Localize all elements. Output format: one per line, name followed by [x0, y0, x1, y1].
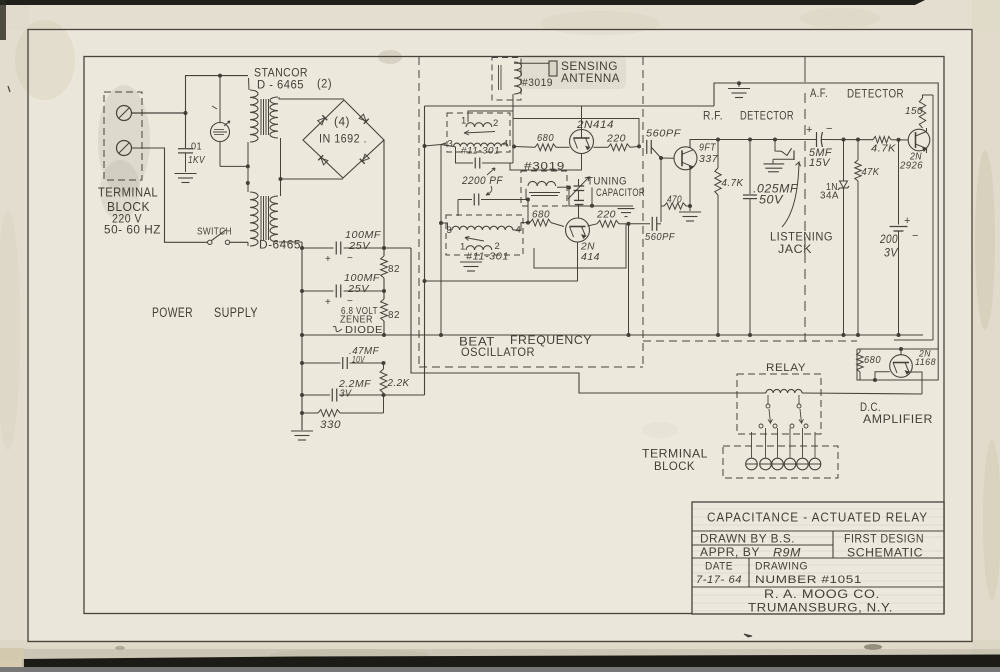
svg-text:D.C.: D.C. — [860, 402, 881, 414]
svg-text:.01: .01 — [188, 141, 202, 153]
svg-text:TRUMANSBURG, N.Y.: TRUMANSBURG, N.Y. — [748, 603, 893, 615]
svg-text:SWITCH: SWITCH — [197, 226, 232, 238]
svg-text:TUNING: TUNING — [587, 176, 627, 188]
svg-text:+: + — [325, 297, 331, 308]
svg-text:D-6465: D-6465 — [259, 240, 301, 252]
svg-text:R. A. MOOG CO.: R. A. MOOG CO. — [764, 589, 880, 601]
svg-text:3V: 3V — [340, 389, 353, 400]
svg-text:3: 3 — [448, 139, 454, 150]
svg-text:NUMBER #1051: NUMBER #1051 — [755, 574, 862, 586]
svg-text:4: 4 — [503, 139, 509, 150]
svg-text:50V: 50V — [759, 195, 784, 207]
svg-text:200: 200 — [879, 234, 898, 246]
svg-text:DIODE: DIODE — [345, 325, 383, 336]
svg-text:337: 337 — [699, 153, 719, 165]
svg-text:BLOCK: BLOCK — [654, 459, 695, 473]
svg-text:AMPLIFIER: AMPLIFIER — [863, 414, 933, 426]
svg-text:TERMINAL: TERMINAL — [98, 185, 158, 200]
svg-text:82: 82 — [388, 309, 400, 321]
svg-text:POWER: POWER — [152, 305, 193, 320]
svg-text:+: + — [806, 124, 813, 136]
svg-text:FREQUENCY: FREQUENCY — [510, 335, 592, 347]
svg-text:OSCILLATOR: OSCILLATOR — [461, 347, 535, 359]
svg-text:150: 150 — [905, 105, 923, 117]
svg-text:DETECTOR: DETECTOR — [847, 89, 904, 101]
svg-text:−: − — [912, 230, 919, 242]
svg-text:560PF: 560PF — [646, 128, 681, 140]
svg-text:1KV: 1KV — [188, 154, 205, 166]
svg-text:#3019: #3019 — [522, 77, 553, 89]
svg-text:680: 680 — [864, 354, 881, 366]
svg-text:#11-301: #11-301 — [466, 252, 509, 263]
svg-text:680: 680 — [537, 132, 554, 144]
svg-text:2: 2 — [493, 118, 499, 129]
svg-text:(4): (4) — [334, 117, 350, 129]
svg-text:9FT: 9FT — [699, 143, 716, 154]
svg-text:330: 330 — [320, 419, 341, 431]
svg-text:25V: 25V — [347, 283, 370, 295]
svg-text:680: 680 — [532, 209, 550, 221]
svg-text:47K: 47K — [862, 166, 880, 178]
svg-text:220: 220 — [606, 133, 626, 145]
svg-text:3V: 3V — [884, 248, 899, 260]
svg-text:R9M: R9M — [773, 546, 801, 560]
svg-text:2: 2 — [495, 241, 501, 252]
svg-text:25V: 25V — [348, 240, 371, 252]
svg-text:#11-301: #11-301 — [461, 146, 500, 157]
svg-text:1: 1 — [460, 242, 466, 253]
svg-text:−: − — [826, 123, 833, 135]
svg-text:SCHEMATIC: SCHEMATIC — [847, 548, 923, 560]
svg-text:#3019: #3019 — [524, 161, 565, 173]
svg-text:34A: 34A — [820, 191, 839, 202]
svg-text:CAPACITANCE - ACTUATED RELAY: CAPACITANCE - ACTUATED RELAY — [707, 511, 928, 525]
svg-text:15V: 15V — [809, 157, 831, 169]
svg-text:BLOCK: BLOCK — [107, 199, 150, 214]
svg-text:220: 220 — [596, 209, 616, 221]
svg-text:JACK: JACK — [778, 244, 812, 256]
svg-text:2.2K: 2.2K — [387, 377, 410, 389]
svg-text:RELAY: RELAY — [766, 362, 806, 374]
svg-text:−: − — [347, 253, 353, 264]
svg-text:FIRST DESIGN: FIRST DESIGN — [844, 534, 924, 546]
svg-text:470: 470 — [667, 194, 682, 206]
svg-text:+: + — [904, 215, 911, 227]
svg-text:+: + — [325, 254, 331, 265]
svg-text:4.7K: 4.7K — [871, 143, 897, 155]
svg-text:ZENER: ZENER — [340, 315, 373, 326]
svg-text:4.7K: 4.7K — [722, 177, 744, 189]
svg-text:DATE: DATE — [705, 561, 733, 573]
svg-text:CAPACITOR: CAPACITOR — [596, 187, 645, 199]
svg-text:APPR, BY: APPR, BY — [700, 547, 760, 559]
svg-text:1: 1 — [461, 116, 467, 127]
svg-text:10V: 10V — [352, 355, 366, 366]
svg-text:2200 PF: 2200 PF — [461, 175, 504, 187]
svg-text:(2): (2) — [317, 79, 332, 91]
svg-text:DETECTOR: DETECTOR — [740, 111, 794, 123]
svg-text:IN 1692 .: IN 1692 . — [319, 134, 367, 146]
svg-text:7-17- 64: 7-17- 64 — [696, 574, 742, 586]
svg-text:SUPPLY: SUPPLY — [214, 305, 258, 320]
svg-text:A.F.: A.F. — [810, 88, 828, 100]
svg-text:414: 414 — [581, 251, 600, 263]
svg-text:R.F.: R.F. — [703, 111, 723, 123]
svg-text:D - 6465: D - 6465 — [257, 78, 304, 92]
svg-text:ANTENNA: ANTENNA — [561, 73, 620, 85]
svg-text:DRAWN BY B.S.: DRAWN BY B.S. — [700, 534, 795, 546]
svg-text:SENSING: SENSING — [561, 61, 618, 73]
svg-text:2926: 2926 — [899, 161, 923, 172]
svg-text:1168: 1168 — [915, 357, 936, 368]
svg-text:DRAWING: DRAWING — [755, 561, 808, 573]
svg-text:82: 82 — [388, 263, 400, 275]
svg-text:50- 60 HZ: 50- 60 HZ — [104, 225, 161, 237]
svg-text:LISTENING: LISTENING — [770, 232, 833, 244]
svg-text:560PF: 560PF — [645, 232, 675, 243]
